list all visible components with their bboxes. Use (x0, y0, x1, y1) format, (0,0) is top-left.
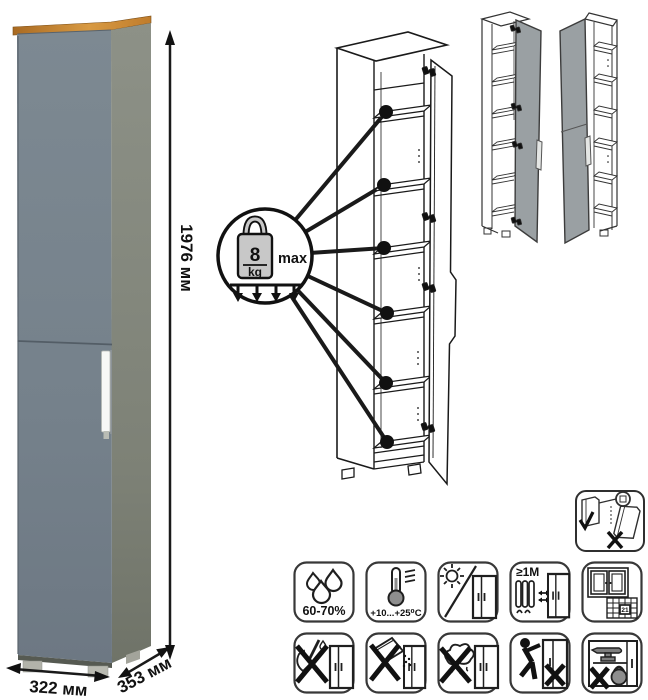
icon-no-overloading (583, 634, 642, 693)
door-handle (102, 350, 112, 439)
temperature-label: +10...+25⁰C (370, 608, 421, 619)
calendar-day: 21 (621, 607, 629, 614)
weight-unit: kg (248, 265, 262, 279)
icon-keep-distance-from-heaters: ≥1М (511, 563, 570, 622)
icon-temperature-range: +10...+25⁰C (367, 563, 426, 622)
icon-humidity-range: 60-70% (295, 563, 354, 622)
icon-ventilate-room-calendar: 21 (583, 563, 642, 622)
height-value: 1976 мм (177, 224, 196, 292)
depth-value: 353 мм (114, 653, 174, 697)
max-label: max (278, 251, 307, 267)
icon-no-wet-cleaning (439, 634, 499, 693)
distance-label: ≥1М (516, 565, 539, 579)
dimension-height: 1976 мм (165, 30, 196, 660)
icon-no-abrasive-powders (367, 634, 426, 693)
icon-no-sharp-tools (295, 634, 354, 693)
diagram-canvas: 1976 мм 322 мм 353 мм (0, 0, 648, 700)
gray-door-panel-right (515, 20, 541, 242)
secure-to-wall-icon (576, 491, 644, 551)
icon-no-dragging-furniture (511, 634, 570, 693)
cabinet-side-panel (111, 23, 151, 663)
drawing-feet (342, 464, 421, 479)
humidity-label: 60-70% (302, 604, 345, 618)
variant-door-right (482, 12, 542, 242)
cabinet-door-front (17, 30, 112, 663)
icon-avoid-direct-sunlight (439, 563, 498, 622)
width-value: 322 мм (29, 677, 88, 700)
product-diagram-page: 1976 мм 322 мм 353 мм (0, 0, 648, 700)
shelf-dots (377, 105, 394, 449)
weight-value: 8 (250, 245, 261, 266)
max-load-callout: 8 kg max (218, 209, 312, 303)
calendar-icon: 21 (607, 598, 637, 618)
kettlebell-icon (612, 667, 627, 685)
variant-door-left (560, 13, 617, 243)
product-photo (13, 16, 151, 677)
shelves (374, 105, 431, 453)
